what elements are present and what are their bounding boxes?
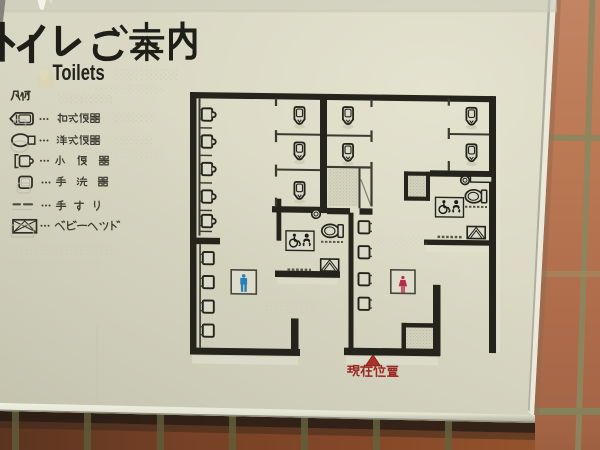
- svg-text:Toilets: Toilets: [53, 61, 105, 86]
